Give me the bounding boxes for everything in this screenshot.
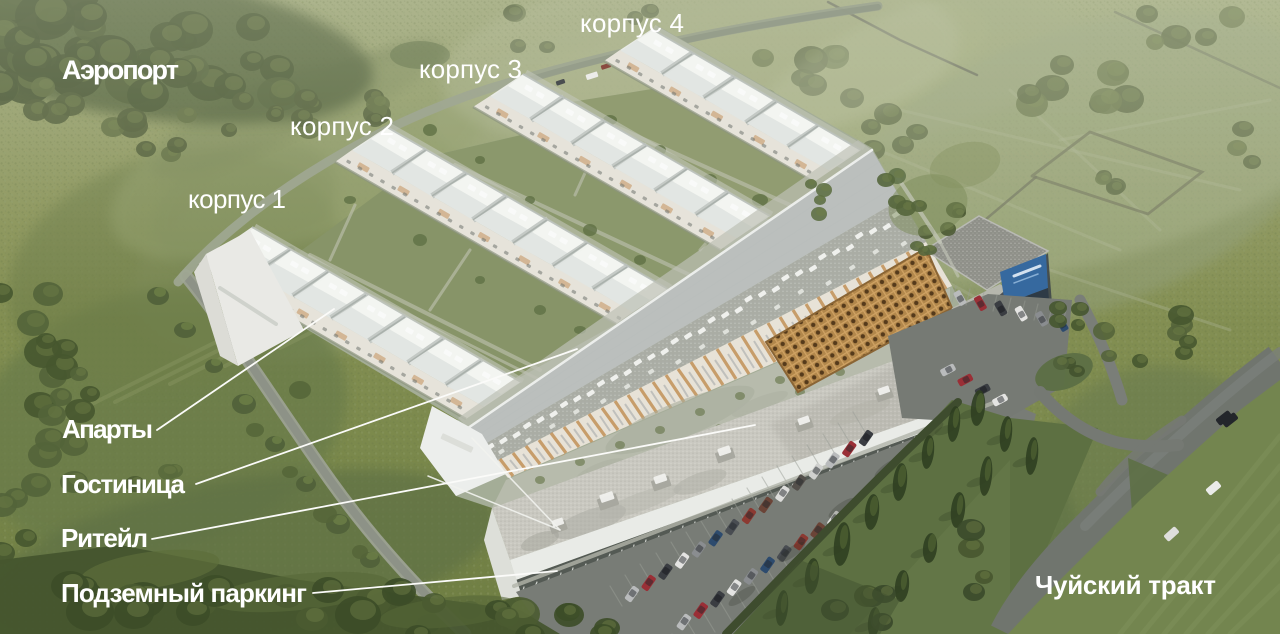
svg-text:Ритейл: Ритейл xyxy=(61,523,148,553)
svg-text:Подземный паркинг: Подземный паркинг xyxy=(61,578,307,608)
svg-text:корпус 2: корпус 2 xyxy=(290,111,394,141)
svg-text:Гостиница: Гостиница xyxy=(61,469,186,499)
svg-text:Апарты: Апарты xyxy=(62,414,153,444)
svg-text:Чуйский тракт: Чуйский тракт xyxy=(1035,570,1216,600)
svg-text:корпус 1: корпус 1 xyxy=(188,184,286,214)
svg-text:корпус 4: корпус 4 xyxy=(580,8,684,38)
svg-text:корпус 3: корпус 3 xyxy=(419,54,522,84)
svg-text:Аэропорт: Аэропорт xyxy=(62,55,179,85)
